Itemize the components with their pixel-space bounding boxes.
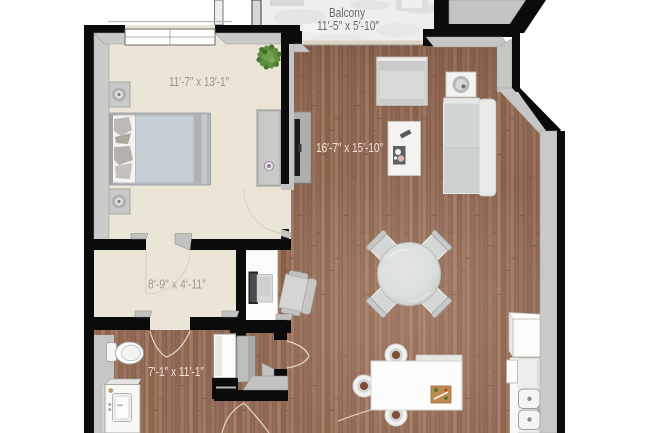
svg-text:11′-7″ x 13′-1″: 11′-7″ x 13′-1″ — [169, 74, 229, 89]
svg-text:7′-1″ x 11′-1″: 7′-1″ x 11′-1″ — [148, 364, 204, 379]
svg-text:8′-9″ x 4′-11″: 8′-9″ x 4′-11″ — [148, 277, 206, 292]
svg-text:16′-7″ x 15′-10″: 16′-7″ x 15′-10″ — [316, 140, 383, 155]
svg-text:11′-5″ x 5′-10″: 11′-5″ x 5′-10″ — [317, 18, 379, 33]
